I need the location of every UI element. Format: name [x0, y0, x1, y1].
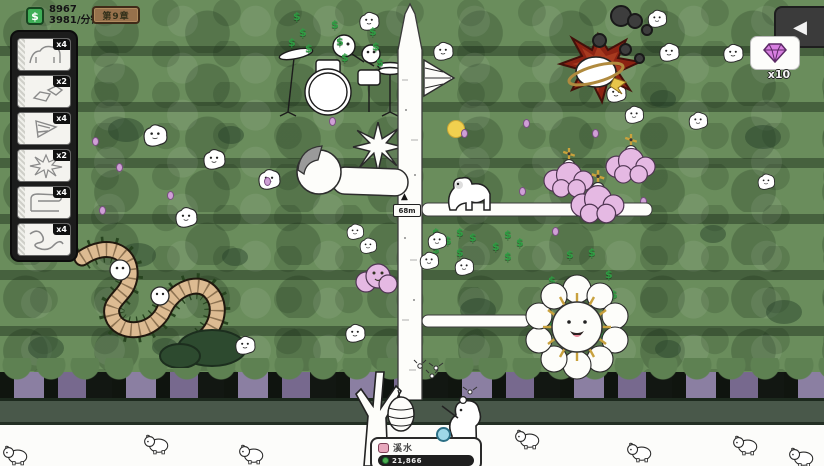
money-particle: $ — [372, 40, 380, 53]
chapter-label: 第9章 — [102, 9, 129, 22]
white-blob-creature — [720, 42, 746, 63]
pink-petal — [92, 137, 99, 146]
selected-unit-panel[interactable]: 溪水 21,866 — [370, 437, 482, 466]
money-particle: $ — [376, 56, 384, 69]
unit-cost-value: 21,866 — [392, 457, 422, 465]
money-particle: $ — [331, 18, 339, 31]
white-blob-creature — [686, 110, 710, 130]
gorilla-creature — [442, 170, 494, 212]
chapter-badge: 第9章 — [92, 6, 140, 24]
water-drop-badge[interactable] — [436, 427, 451, 442]
white-blob-creature — [140, 122, 170, 147]
white-blob-creature — [342, 322, 368, 343]
ground-puppy-creature — [626, 441, 654, 463]
white-blob-creature — [200, 147, 228, 170]
unit-card-worm[interactable]: x4 — [17, 223, 71, 256]
card-count-badge: x4 — [53, 224, 70, 235]
unit-card-splat[interactable]: x2 — [17, 149, 71, 182]
height-marker-arrow-icon: ▲ — [401, 193, 408, 202]
tower-height-marker: 68m — [393, 204, 421, 217]
pink-petal — [329, 117, 336, 126]
money-particle: $ — [305, 42, 313, 55]
unit-card-white-beast[interactable]: x4 — [17, 38, 71, 71]
dark-tree-clump — [218, 126, 244, 144]
game-viewport: ▲ 68m — [0, 0, 824, 466]
pink-petal — [167, 191, 174, 200]
card-count-badge: x4 — [53, 113, 70, 124]
pink-petal — [99, 206, 106, 215]
white-blob-creature — [425, 230, 449, 250]
tower-height-label: 68m — [398, 207, 415, 215]
ground-puppy-creature — [788, 446, 816, 466]
white-blob-creature — [430, 40, 456, 61]
unit-card-crates[interactable]: x2 — [17, 75, 71, 108]
centipede-creature — [62, 236, 247, 368]
card-count-badge: x4 — [53, 187, 70, 198]
gem-count-label: x10 — [762, 68, 796, 81]
money-particle: $ — [336, 35, 344, 48]
dark-tree-clump — [108, 118, 144, 142]
money-particle: $ — [341, 51, 349, 64]
ground-puppy-creature — [2, 444, 30, 466]
dark-tree-clump — [766, 300, 802, 324]
money-icon-glyph: $ — [31, 10, 39, 23]
money-particle: $ — [293, 10, 301, 23]
pink-petal — [116, 163, 123, 172]
white-blob-creature — [232, 334, 258, 355]
unit-card-drill[interactable]: x4 — [17, 112, 71, 145]
coin-icon — [382, 457, 389, 464]
wreath-sun-creature — [522, 272, 632, 382]
horned-worm-creature — [292, 140, 412, 204]
dark-tree-clump — [700, 225, 726, 243]
money-bag-icon: $ — [26, 7, 44, 25]
unit-card-tube-beast[interactable]: x4 — [17, 186, 71, 219]
money-particle: $ — [299, 26, 307, 39]
card-count-badge: x2 — [53, 76, 70, 87]
dark-tree-clump — [28, 336, 64, 360]
white-blob-creature — [417, 250, 441, 270]
white-blob-creature — [172, 205, 200, 228]
gem-counter-card[interactable] — [750, 36, 800, 70]
card-count-badge: x2 — [53, 150, 70, 161]
ground-puppy-creature — [143, 433, 171, 455]
ground-puppy-creature — [238, 443, 266, 465]
pink-petal — [264, 177, 271, 186]
white-blob-creature — [452, 256, 476, 276]
money-counter: $ 8967 3981/分钟 — [26, 4, 100, 26]
pink-cloud-creature — [567, 170, 629, 224]
money-particle: $ — [288, 36, 296, 49]
white-blob-creature — [755, 172, 777, 190]
unit-card-panel: x4 x2 x4 x2 x4 — [10, 30, 78, 262]
white-blob-creature — [357, 236, 379, 254]
unit-portrait-icon — [378, 443, 389, 453]
unit-name: 溪水 — [393, 441, 413, 454]
card-count-badge: x4 — [53, 39, 70, 50]
gem-diamond-icon — [763, 43, 787, 63]
ground-puppy-creature — [514, 428, 542, 450]
collapse-arrow-icon: ◀ — [793, 17, 807, 38]
money-particle: $ — [369, 25, 377, 38]
dark-tree-clump — [745, 125, 781, 149]
unit-cost-pill: 21,866 — [378, 455, 474, 466]
ground-puppy-creature — [732, 434, 760, 456]
